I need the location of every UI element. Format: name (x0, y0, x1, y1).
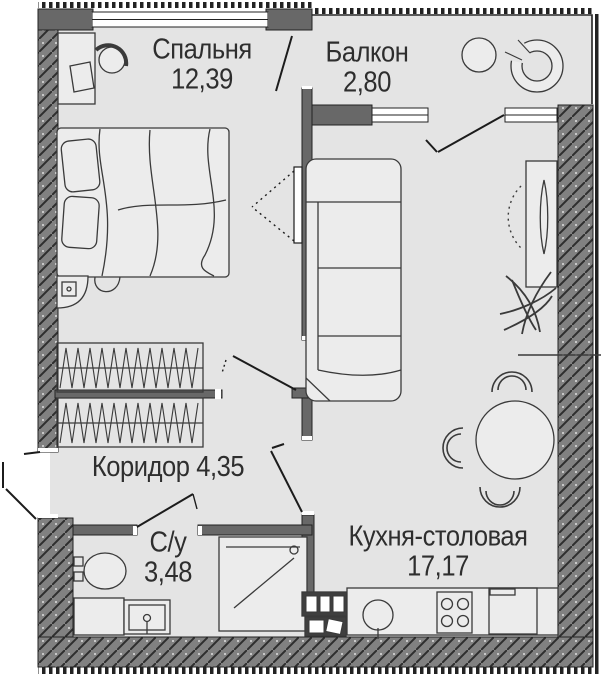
bedroom-label: Спальня 12,39 (152, 35, 251, 96)
shower (219, 537, 307, 631)
wall-top-center (266, 9, 312, 30)
entrance-door (3, 452, 40, 519)
kitchen-name: Кухня-столовая (348, 521, 527, 553)
utility-shaft (302, 592, 347, 636)
balcony-name: Балкон (326, 37, 409, 69)
trim-top (38, 2, 312, 8)
bed (57, 128, 229, 292)
kitchen-area: 17,17 (348, 552, 527, 582)
trim-balcony-top (312, 8, 593, 14)
kitchen-counter (347, 588, 558, 639)
balcony-table (462, 38, 496, 72)
bedroom-name: Спальня (152, 34, 251, 66)
balcony-label: Балкон 2,80 (326, 38, 409, 99)
bathroom-label: С/у 3,48 (144, 528, 192, 589)
bathroom-area: 3,48 (144, 558, 192, 588)
bathroom-name: С/у (150, 527, 187, 559)
wall-wardrobe-divider (55, 390, 222, 398)
trim-bottom (38, 667, 600, 674)
desk (58, 33, 95, 104)
washer (74, 598, 124, 635)
corridor-area: 4,35 (196, 451, 244, 483)
wall-left-upper (38, 30, 58, 452)
bathroom-sink (124, 600, 170, 634)
kitchen-label: Кухня-столовая 17,17 (348, 522, 527, 583)
wall-top-left (38, 9, 93, 30)
wall-bottom (38, 637, 593, 667)
wall-left-lower (38, 518, 73, 637)
wall-right (558, 105, 593, 637)
corridor-name: Коридор (92, 451, 190, 483)
sofa (306, 159, 401, 401)
wall-bathroom-top-left (73, 525, 137, 535)
floor-plan: Спальня 12,39 Балкон 2,80 Коридор 4,35 С… (0, 0, 601, 678)
wall-bathroom-top-right (198, 525, 312, 535)
trim-right (593, 14, 600, 667)
balcony-area: 2,80 (326, 68, 409, 98)
desk-paper (70, 62, 94, 92)
bedroom-area: 12,39 (152, 65, 251, 95)
corridor-label: Коридор 4,35 (92, 452, 244, 482)
dining-table (476, 401, 554, 479)
wall-middle-mid (302, 398, 312, 440)
